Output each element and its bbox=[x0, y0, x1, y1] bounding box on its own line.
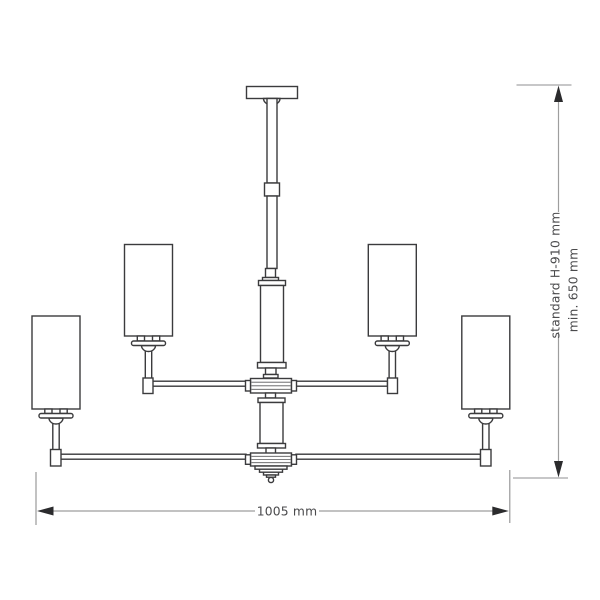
center-column bbox=[246, 269, 297, 483]
arm-lower-right bbox=[296, 454, 481, 459]
lamp-upper-right bbox=[368, 245, 416, 394]
cylinder-cap bbox=[258, 363, 287, 369]
arm-upper-left bbox=[153, 381, 247, 386]
column-flange bbox=[264, 375, 279, 379]
chandelier bbox=[32, 87, 510, 483]
finial bbox=[255, 466, 287, 483]
shade-tab bbox=[396, 336, 403, 341]
arrow-right-icon bbox=[492, 507, 509, 516]
hub-end-cap bbox=[246, 455, 251, 465]
candle-cup bbox=[142, 346, 156, 352]
candle-cup bbox=[385, 346, 399, 352]
height-min-label: min. 650 mm bbox=[567, 248, 581, 333]
shade-tab bbox=[381, 336, 388, 341]
hub-end-cap bbox=[292, 455, 297, 465]
arm-upper-right bbox=[296, 381, 388, 386]
shade-upper-right bbox=[368, 245, 416, 337]
shade-ring bbox=[132, 341, 166, 346]
lamp-lower-right bbox=[462, 316, 510, 466]
arrow-left-icon bbox=[37, 507, 54, 516]
candle-cup bbox=[49, 418, 63, 424]
arm-elbow bbox=[143, 378, 153, 394]
column-neck bbox=[266, 368, 277, 375]
finial-ball bbox=[268, 477, 273, 482]
candle-stem bbox=[483, 423, 489, 451]
candle-cup bbox=[479, 418, 493, 424]
canopy-plate bbox=[247, 87, 298, 99]
column-neck bbox=[266, 393, 276, 398]
lower-cylinder-body bbox=[260, 403, 283, 444]
candle-stem bbox=[389, 351, 395, 379]
candle-stem bbox=[53, 423, 59, 451]
shade-ring bbox=[469, 414, 503, 419]
chandelier-technical-drawing: standard H-910 mm min. 650 mm 1005 mm bbox=[0, 0, 600, 600]
shade-lower-right bbox=[462, 316, 510, 409]
technical-drawing-page: standard H-910 mm min. 650 mm 1005 mm bbox=[0, 0, 600, 600]
rod-upper-section bbox=[267, 99, 277, 184]
width-label: 1005 mm bbox=[257, 505, 318, 519]
lamp-lower-left bbox=[32, 316, 80, 466]
shade-ring bbox=[39, 414, 73, 419]
suspension-rod bbox=[265, 99, 280, 269]
cylinder-cap bbox=[259, 281, 286, 286]
candle-stem bbox=[145, 351, 151, 379]
arm-elbow bbox=[51, 450, 62, 467]
rod-lower-section bbox=[267, 196, 277, 269]
rod-connector bbox=[265, 183, 280, 196]
shade-tab bbox=[137, 336, 144, 341]
shade-upper-left bbox=[125, 245, 173, 337]
height-standard-label: standard H-910 mm bbox=[549, 212, 563, 339]
arm-lower-left bbox=[61, 454, 247, 459]
arrow-down-icon bbox=[554, 461, 563, 478]
lamp-upper-left bbox=[125, 245, 173, 394]
upper-cylinder-body bbox=[261, 286, 284, 363]
hub-end-cap bbox=[292, 381, 297, 392]
shade-tab bbox=[153, 336, 160, 341]
arm-elbow bbox=[481, 450, 492, 467]
hub-end-cap bbox=[246, 381, 251, 392]
lower-hub bbox=[246, 453, 297, 466]
arrow-up-icon bbox=[554, 86, 563, 103]
upper-hub bbox=[246, 379, 297, 394]
shade-lower-left bbox=[32, 316, 80, 409]
height-dimension: standard H-910 mm min. 650 mm bbox=[513, 85, 581, 478]
arm-elbow bbox=[388, 378, 398, 394]
shade-ring bbox=[375, 341, 409, 346]
column-neck bbox=[266, 269, 276, 278]
